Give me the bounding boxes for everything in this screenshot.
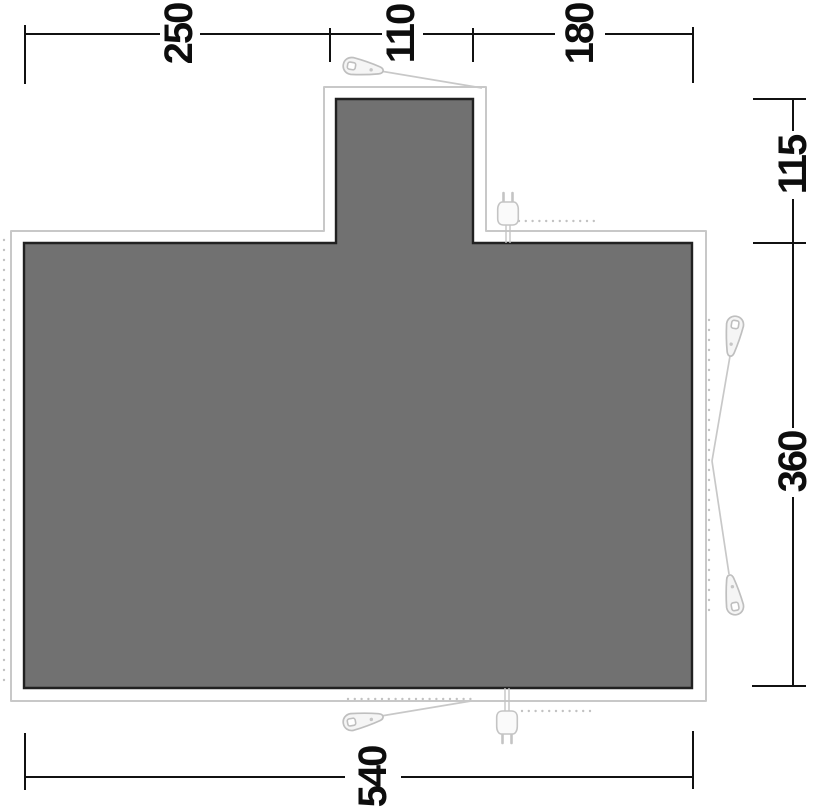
dim-label-180: 180 xyxy=(538,0,622,76)
dim-label-250: 250 xyxy=(137,0,221,76)
floorplan-canvas xyxy=(0,0,816,808)
guy-peg-icon-right-upper xyxy=(722,315,745,357)
guy-line-bottom-left xyxy=(381,701,471,716)
guy-line-right-lower xyxy=(712,461,729,574)
guy-peg-icon-right-lower xyxy=(721,574,745,617)
dim-label-115: 115 xyxy=(751,123,816,207)
dim-label-110: 110 xyxy=(359,0,443,76)
floorplan-diagram: 250 110 180 115 360 540 xyxy=(0,0,816,808)
dim-label-540: 540 xyxy=(331,735,415,808)
guy-line-right-upper xyxy=(712,356,730,461)
tent-footprint xyxy=(24,99,692,688)
dim-label-360: 360 xyxy=(751,420,816,504)
guy-peg-icon-bottom-left xyxy=(342,708,385,732)
